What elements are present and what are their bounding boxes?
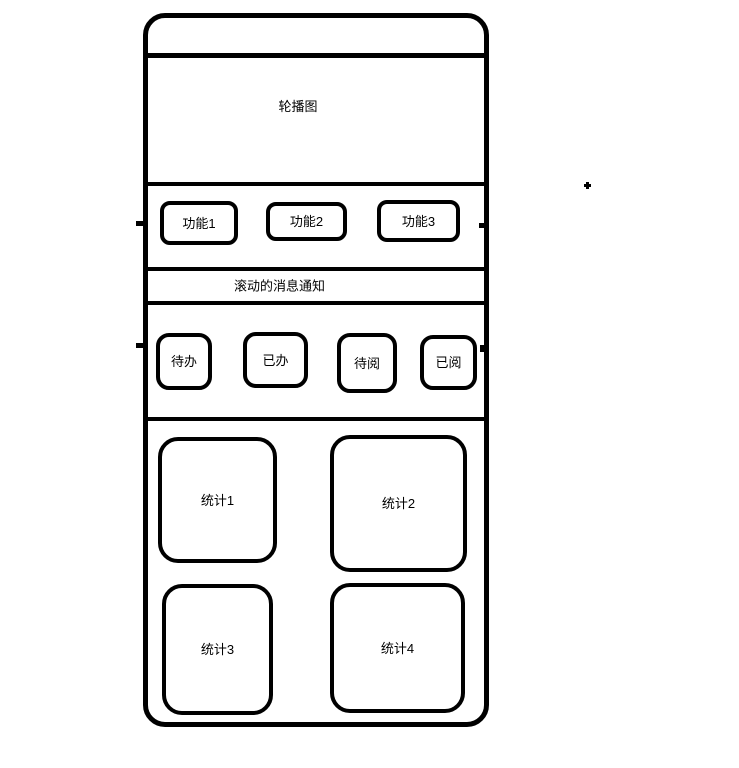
stat-card-4-label: 统计4 <box>381 642 414 655</box>
function-button-2[interactable]: 功能2 <box>266 202 347 241</box>
action-button-read-label: 已阅 <box>435 356 461 369</box>
action-button-to-read-label: 待阅 <box>354 357 380 370</box>
stats-grid-section: 统计1 统计2 统计3 统计4 <box>148 421 484 722</box>
action-button-done[interactable]: 已办 <box>243 332 308 388</box>
function-button-1-label: 功能1 <box>182 217 215 230</box>
connector-tick-left-top <box>136 221 143 226</box>
carousel-label: 轮播图 <box>278 100 317 113</box>
function-button-3[interactable]: 功能3 <box>377 200 460 242</box>
status-bar <box>148 18 484 58</box>
stray-cross-mark <box>584 182 591 189</box>
action-button-todo-label: 待办 <box>171 355 197 368</box>
function-row-section: 功能1 功能2 功能3 <box>148 186 484 271</box>
action-button-to-read[interactable]: 待阅 <box>337 333 397 393</box>
function-button-3-label: 功能3 <box>402 215 435 228</box>
connector-tick-left-bottom <box>136 343 143 348</box>
stat-card-1-label: 统计1 <box>201 494 234 507</box>
function-button-1[interactable]: 功能1 <box>160 201 238 245</box>
action-button-done-label: 已办 <box>262 354 288 367</box>
stat-card-3[interactable]: 统计3 <box>162 584 273 715</box>
carousel-placeholder[interactable]: 轮播图 <box>148 58 484 186</box>
canvas: 轮播图 功能1 功能2 功能3 滚动的消息通知 待办 已办 待阅 <box>0 0 739 768</box>
connector-tick-right-top <box>479 223 485 228</box>
stat-card-3-label: 统计3 <box>201 643 234 656</box>
stat-card-1[interactable]: 统计1 <box>158 437 277 563</box>
stat-card-2-label: 统计2 <box>382 497 415 510</box>
connector-tick-right-bottom <box>480 345 485 352</box>
phone-frame: 轮播图 功能1 功能2 功能3 滚动的消息通知 待办 已办 待阅 <box>143 13 489 727</box>
action-button-todo[interactable]: 待办 <box>156 333 212 390</box>
notification-marquee-bar[interactable]: 滚动的消息通知 <box>148 271 484 305</box>
function-button-2-label: 功能2 <box>290 215 323 228</box>
stat-card-4[interactable]: 统计4 <box>330 583 465 713</box>
action-row-section: 待办 已办 待阅 已阅 <box>148 305 484 421</box>
stat-card-2[interactable]: 统计2 <box>330 435 467 572</box>
action-button-read[interactable]: 已阅 <box>420 335 477 390</box>
notification-marquee-label: 滚动的消息通知 <box>234 280 325 293</box>
